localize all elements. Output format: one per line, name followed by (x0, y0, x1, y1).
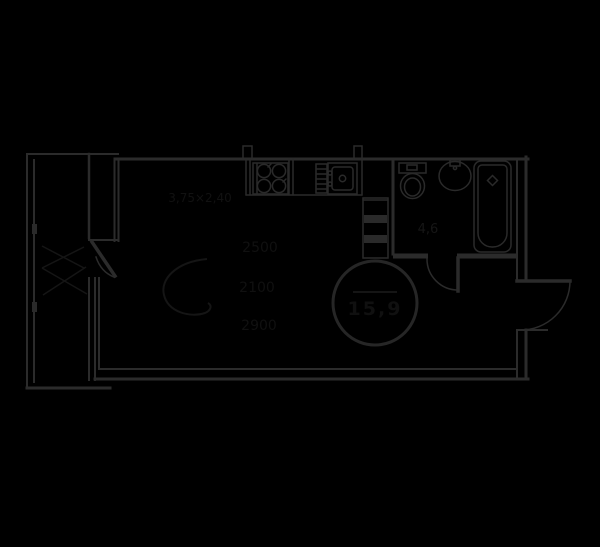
faint-dimension-2: 2100 (239, 280, 275, 296)
bathtub-drain-icon (488, 176, 498, 186)
bathroom-area-label: 4,6 (418, 222, 439, 237)
faint-dimension-1: 2500 (242, 240, 278, 256)
floor-plan-drawing: 15,9 3,75×2,40 4,6 2500 2100 2900 (0, 0, 600, 547)
toilet-bowl-inner (405, 178, 421, 196)
glazing-mullion (32, 224, 37, 234)
washbasin-drain-icon (453, 166, 456, 169)
bathroom (399, 160, 511, 252)
bathtub-inner (478, 165, 507, 247)
burner-icon (272, 164, 285, 177)
balcony-x-marks (42, 246, 87, 295)
tap-icon (328, 171, 332, 175)
faint-scribble-c (163, 259, 210, 315)
toilet (399, 163, 426, 199)
drainboard (316, 164, 327, 193)
burner-tick (268, 164, 271, 167)
top-wall-pilaster (354, 146, 362, 159)
tap-icon (328, 182, 332, 186)
kitchen-sink (328, 163, 357, 194)
entrance-door-arc (521, 281, 570, 330)
vent-shaft (363, 198, 388, 258)
glazing-mullion (32, 302, 37, 312)
top-wall-pilaster (243, 146, 252, 159)
toilet-flush-button (407, 165, 417, 170)
area-stamp-value: 15,9 (348, 298, 403, 320)
vent-shaft-band (364, 235, 387, 243)
bathroom-door-arc (427, 259, 458, 290)
kitchen-counter (246, 159, 362, 195)
stove-4-burner (253, 163, 288, 194)
washbasin (439, 160, 471, 191)
burner-icon (257, 179, 270, 192)
floor-plan-canvas: 15,9 3,75×2,40 4,6 2500 2100 2900 (0, 0, 600, 547)
sink-bowl (332, 167, 353, 190)
faint-dimension-3: 2900 (241, 318, 277, 334)
sink-drain-icon (339, 175, 345, 181)
room-dimension-label: 3,75×2,40 (168, 191, 232, 205)
vent-shaft-band (364, 215, 387, 223)
burner-tick (283, 179, 286, 182)
area-stamp: 15,9 (333, 261, 417, 345)
bathtub (474, 161, 511, 252)
vent-shaft-outline (363, 198, 388, 258)
